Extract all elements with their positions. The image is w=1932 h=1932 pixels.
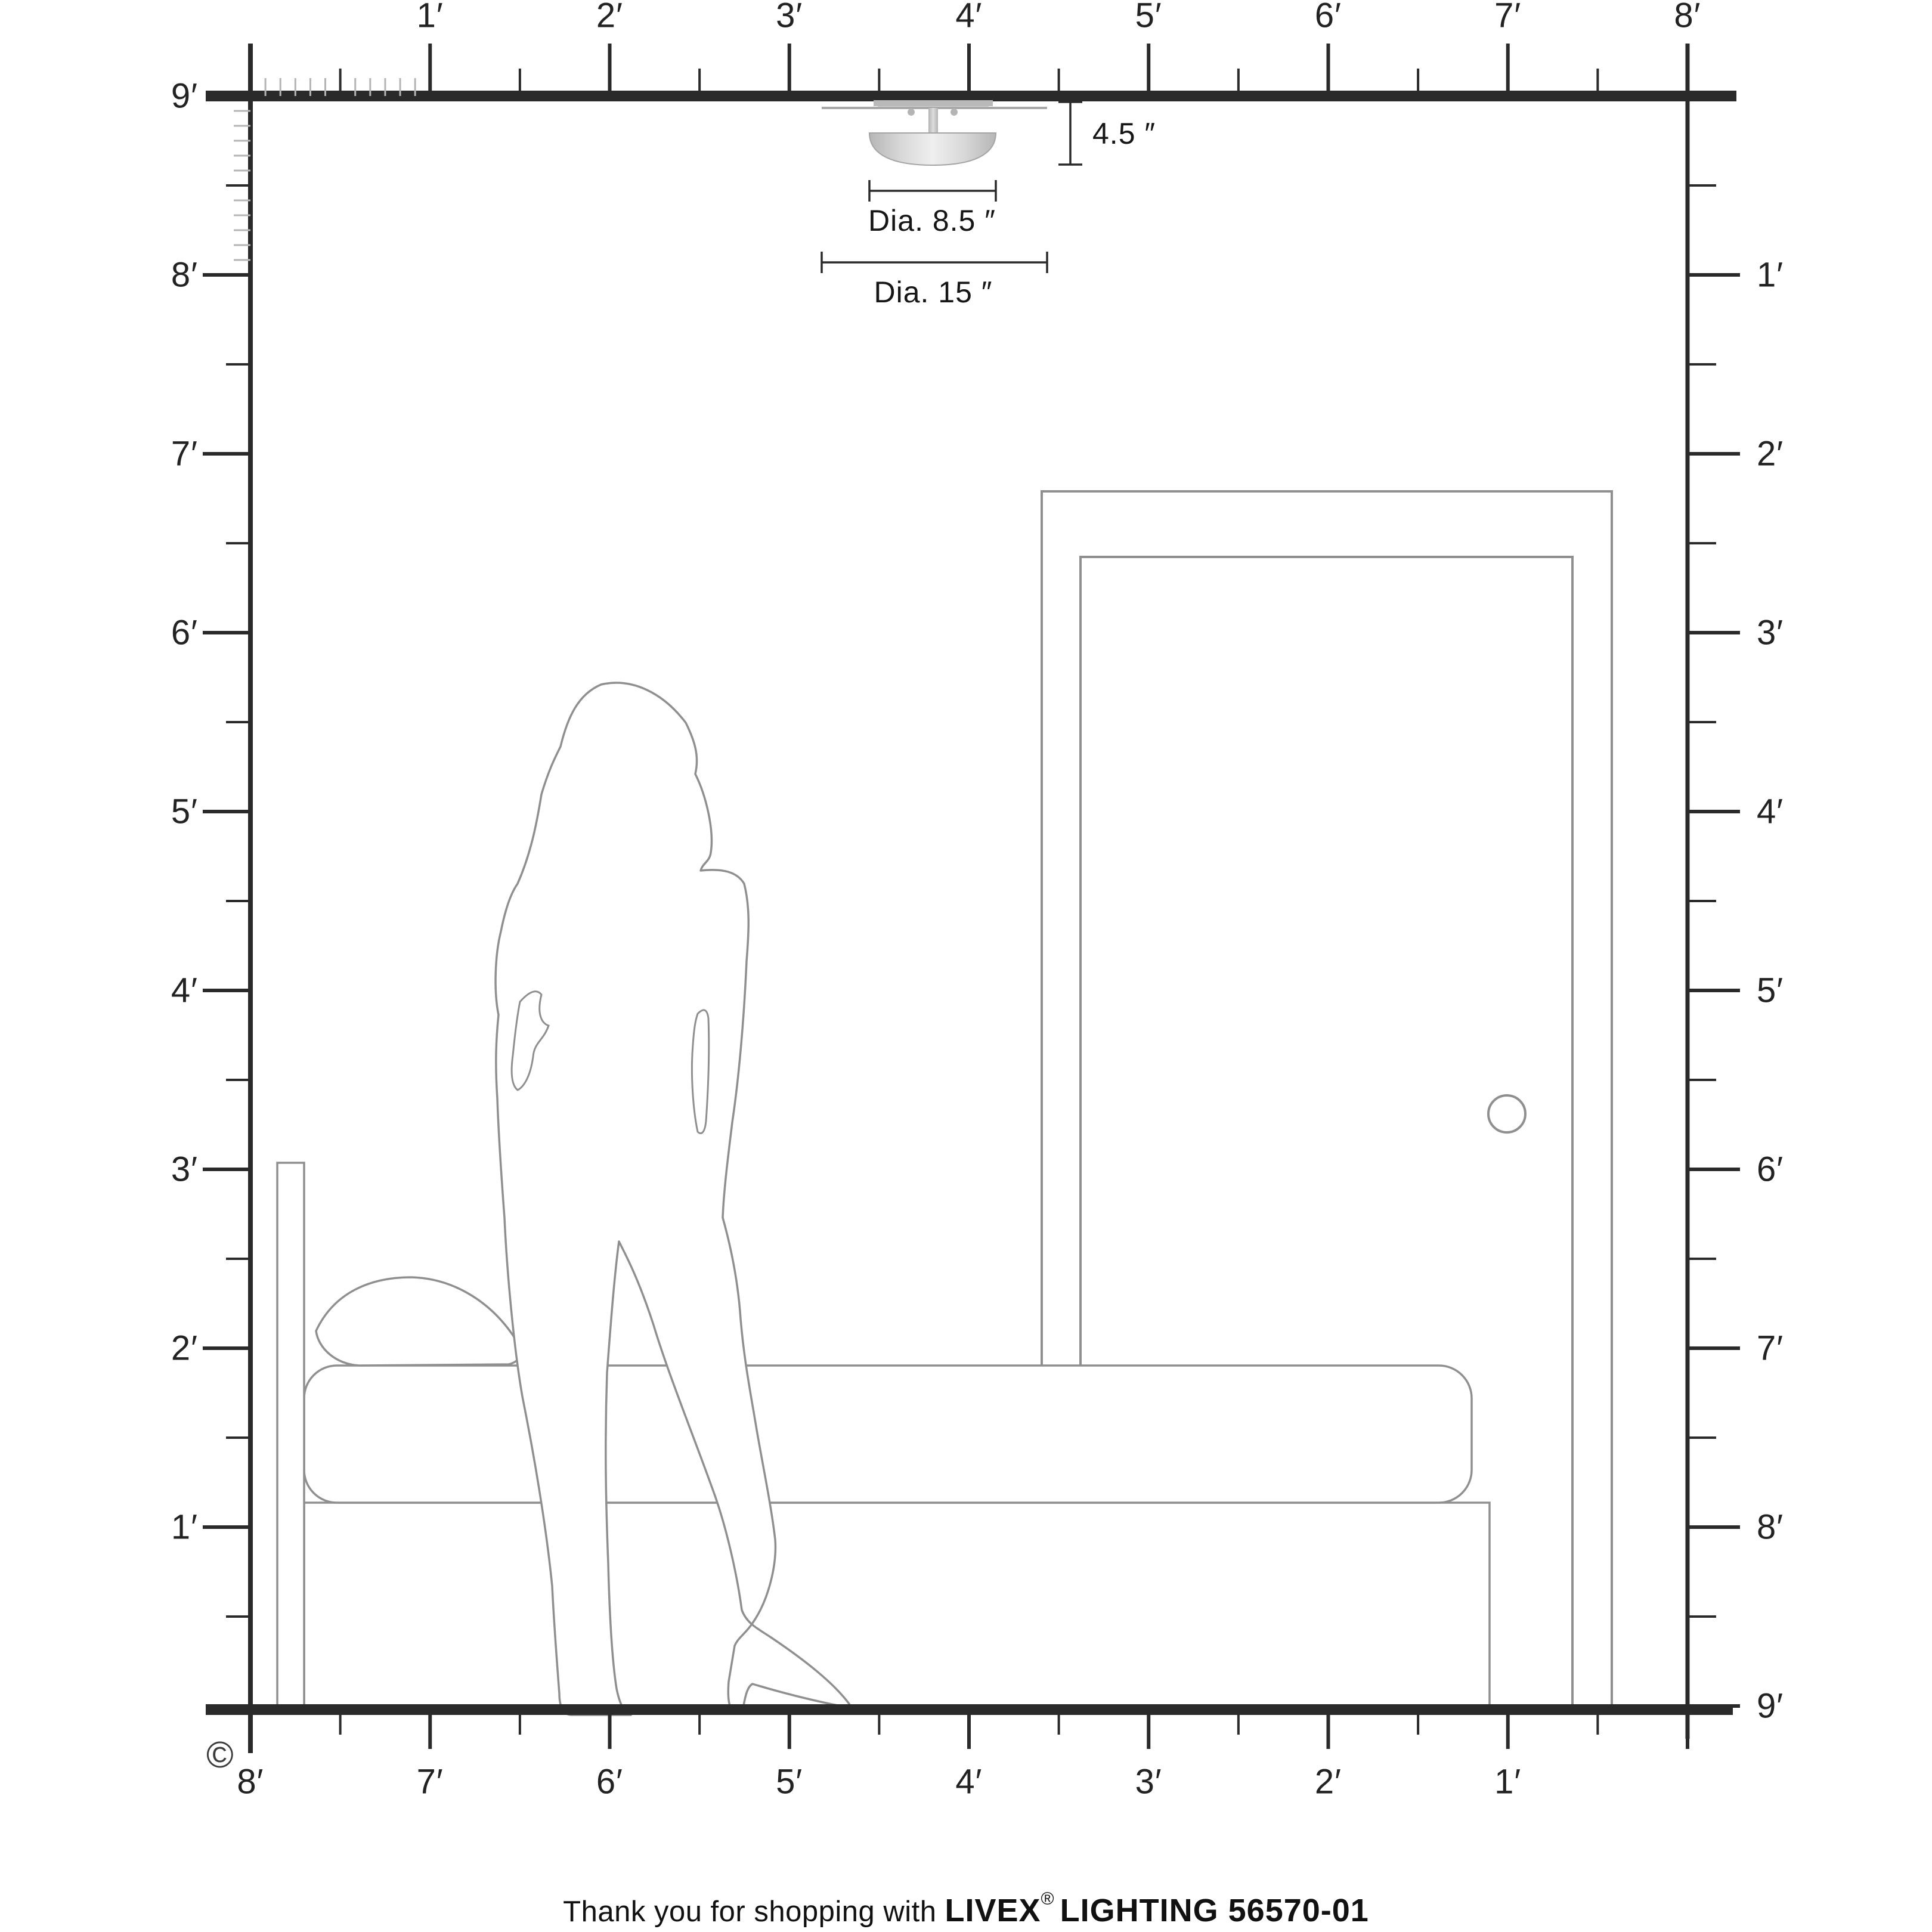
right-ruler-label: 2′ <box>1757 434 1784 474</box>
fixture-height-label: 4.5 ″ <box>1092 116 1156 151</box>
top-ruler-label: 8′ <box>1674 0 1701 36</box>
top-ruler-label: 4′ <box>955 0 982 36</box>
registered-trademark-icon: ® <box>1041 1889 1054 1909</box>
glass-diameter-label: Dia. 8.5 ″ <box>868 203 996 238</box>
bottom-ruler-label: 3′ <box>1135 1762 1162 1802</box>
bottom-ruler-label: 8′ <box>237 1762 264 1802</box>
left-ruler-label: 8′ <box>171 255 198 295</box>
ceiling-fixture <box>822 99 1047 165</box>
left-ruler-label: 3′ <box>171 1150 198 1190</box>
right-ruler-label: 9′ <box>1757 1686 1784 1726</box>
overall-diameter-label: Dia. 15 ″ <box>874 275 992 309</box>
fixture-glass-dome <box>869 133 996 165</box>
headboard <box>277 1163 304 1709</box>
top-ruler-label: 7′ <box>1494 0 1521 36</box>
top-ruler-label: 5′ <box>1135 0 1162 36</box>
top-ruler-label: 1′ <box>417 0 444 36</box>
bottom-ruler-label: 4′ <box>955 1762 982 1802</box>
right-ruler-label: 1′ <box>1757 255 1784 295</box>
left-ruler-label: 2′ <box>171 1329 198 1368</box>
right-ruler-label: 7′ <box>1757 1329 1784 1368</box>
door-knob <box>1488 1095 1525 1132</box>
fixture-screw-right <box>950 109 958 116</box>
right-ruler-label: 5′ <box>1757 971 1784 1011</box>
bottom-ruler-label: 1′ <box>1494 1762 1521 1802</box>
mattress <box>304 1366 1472 1503</box>
right-ruler-label: 3′ <box>1757 613 1784 653</box>
left-ruler-label: 6′ <box>171 613 198 653</box>
top-ruler-label: 3′ <box>776 0 803 36</box>
footer-thanks-text: Thank you for shopping with <box>563 1896 936 1928</box>
bottom-ruler-ticks <box>250 1715 1688 1749</box>
left-ruler-ticks <box>203 111 250 1617</box>
left-ruler-label: 7′ <box>171 434 198 474</box>
footer-model-number: LIGHTING 56570-01 <box>1060 1893 1369 1928</box>
bed-base <box>304 1503 1490 1709</box>
fixture-canopy-band <box>874 100 993 106</box>
floor-line <box>206 1704 1733 1715</box>
pillow <box>316 1277 521 1366</box>
bottom-ruler-label: 6′ <box>596 1762 623 1802</box>
left-ruler-label: 5′ <box>171 792 198 832</box>
left-ruler-label: 1′ <box>171 1507 198 1547</box>
left-ruler-label: 9′ <box>171 76 198 116</box>
footer-brand: LIVEX <box>945 1893 1041 1928</box>
top-ruler-label: 2′ <box>596 0 623 36</box>
bottom-ruler-label: 5′ <box>776 1762 803 1802</box>
fixture-screw-left <box>908 109 915 116</box>
dimension-diagram: 1′2′3′4′5′6′7′8′9′8′7′6′5′4′3′2′1′1′2′3′… <box>0 0 1932 1932</box>
bottom-ruler-label: 2′ <box>1315 1762 1342 1802</box>
footer-text: Thank you for shopping withLIVEX®LIGHTIN… <box>0 1889 1932 1929</box>
dimension-lines <box>822 102 1082 273</box>
top-ruler-label: 6′ <box>1315 0 1342 36</box>
top-ruler-ticks <box>250 44 1688 96</box>
right-ruler-label: 6′ <box>1757 1150 1784 1190</box>
bottom-ruler-label: 7′ <box>417 1762 444 1802</box>
right-ruler-label: 8′ <box>1757 1507 1784 1547</box>
fixture-stem <box>928 108 938 134</box>
left-ruler-label: 4′ <box>171 971 198 1011</box>
right-ruler-label: 4′ <box>1757 792 1784 832</box>
right-hand-gap <box>692 1010 708 1134</box>
copyright-symbol: © <box>206 1734 234 1776</box>
right-ruler-ticks <box>1688 185 1740 1706</box>
